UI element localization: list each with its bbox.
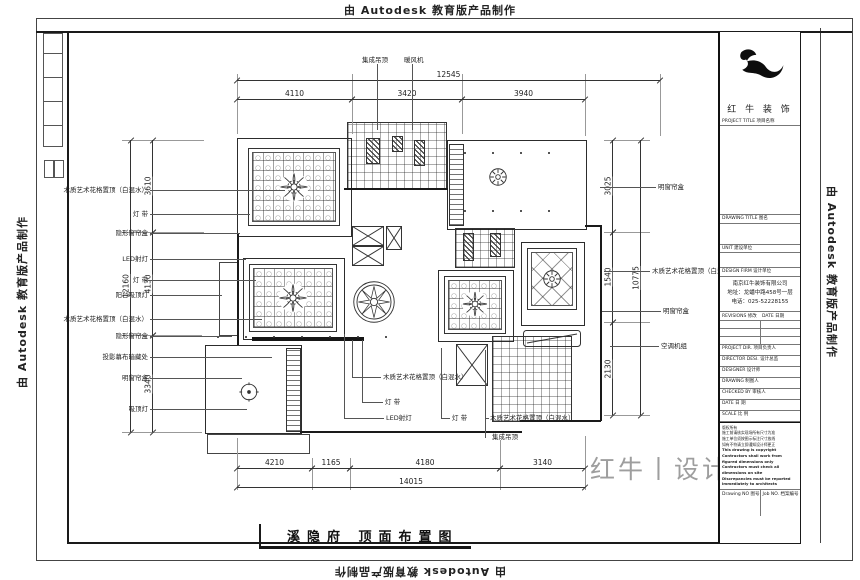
tb-person-row: DIRECTOR DESI. 设计总监 [720,356,800,367]
revisions-header: REVISIONS 修改 DATE 日期 [720,312,800,321]
firm-info: 南京红牛装饰有限公司 地址：龙蟠中路458号一层 电话：025-52228155 [720,277,800,312]
tb-person-row: DRAWING 制图人 [720,378,800,389]
label-led-spotlight: LED射灯 [386,415,412,422]
dim-left-seg: 3610 [152,140,153,232]
margin-box [43,77,63,103]
label-heater-fan: 暖风机 [404,57,424,64]
ceiling-lamp-icon [238,381,260,403]
label-balcony-ceiling-lamp: 阳台吸顶灯 [116,292,149,299]
dim-top-total: 12545 [237,80,660,81]
margin-box-small [44,160,54,178]
label-hidden-curtain-box: 隐形窗帘盒 [116,333,149,340]
label-hidden-curtain-box: 隐形窗帘盒 [116,230,149,237]
hatch-block [490,233,501,257]
tb-footer: Drawing NO 图号 Job NO. 档案编号 [720,489,800,516]
label-exposed-curtain-box: 明窗帘盒 [663,308,689,315]
firm-phone: 电话：025-52228155 [721,298,799,307]
tb-person-row: PROJECT DIR. 项目负责人 [720,345,800,356]
label-exposed-curtain-box: 明窗帘盒 [122,375,148,382]
tb-person-row: CHECKED BY 审核人 [720,389,800,400]
label-wood-lattice-ceiling: 木质艺术花格置顶（白混水） [64,316,149,323]
label-exposed-curtain-box: 明窗帘盒 [658,184,684,191]
dim-top-seg: 3940 [462,99,585,100]
hatch-block [463,233,474,261]
dim-bottom-seg: 3140 [500,468,585,469]
brand-watermark: 红牛丨设计 [590,450,730,486]
label-light-strip: 灯 带 [452,415,467,422]
tb-notes: 版权所有 施工前请核实现场所有尺寸为准 施工单位须按图示标注尺寸放线 如有不符请… [720,422,800,490]
ceiling-fan-icon [541,268,563,290]
fold-line [820,28,821,543]
autodesk-banner-bottom: 由 Autodesk 教育版产品制作 [320,564,520,580]
page-title: 溪隐府 顶面布置图 [287,526,459,545]
margin-box [43,101,63,127]
dim-bottom-seg: 1165 [312,468,350,469]
note-line: Contractors shall work from figured dime… [722,453,798,464]
dim-top-seg: 4110 [237,99,352,100]
dim-bottom-seg: 4180 [350,468,500,469]
wall [585,225,601,227]
ceiling-grid-bath-lower [492,336,572,422]
dim-bottom-seg: 4210 [237,468,312,469]
job-no-label: Job NO. 档案编号 [761,490,801,516]
tb-person-row: SCALE 比 例 [720,411,800,422]
hatch-block [414,140,425,166]
margin-box-small [54,160,64,178]
note-line: Discrepancies must be reported immediate… [722,476,798,487]
label-light-strip: 灯 带 [385,399,400,406]
wall [600,225,602,421]
margin-box [43,125,63,147]
company-name: 红 牛 装 饰 [720,102,800,118]
wall [300,431,522,433]
ceiling-medallion [275,280,311,316]
tb-project-title-space [720,126,800,215]
sheet-border-bottom [36,560,852,561]
note-line: Contractors must check all dimensions on… [722,464,798,475]
downlight-row [462,150,574,156]
label-integrated-ceiling: 集成吊顶 [492,434,518,441]
label-wood-lattice-ceiling: 木质艺术花格置顶（白混水） [64,187,149,194]
autodesk-banner-top: 由 Autodesk 教育版产品制作 [330,2,530,18]
sheet-border-left [36,18,37,561]
revision-row [720,321,800,329]
dim-right-seg: 2130 [612,322,613,415]
ceiling-medallion [276,169,312,205]
tb-person-row: DESIGNER 设计师 [720,367,800,378]
tb-drawing-title: DRAWING TITLE 图名 [720,215,800,223]
revisions-label: REVISIONS 修改 [720,312,760,320]
hatch-block [392,136,403,152]
label-wood-lattice-ceiling: 木质艺术花格置顶（白混水） [383,374,468,381]
downlight-row [215,334,390,340]
frame-left [67,31,69,544]
sheet-border-right [852,18,853,561]
title-block: 红 牛 装 饰 PROJECT TITLE 项目名称 DRAWING TITLE… [718,32,800,543]
ceiling-medallion [459,288,491,320]
balcony-left [219,262,238,336]
ceiling-grid-kitchen [347,122,447,190]
dim-right-seg: 1540 [612,232,613,322]
wall [344,188,448,190]
margin-box [43,53,63,79]
revisions-date-label: DATE 日期 [760,312,800,320]
hatch-block [366,138,380,164]
sheet-border-top [36,18,852,19]
tb-person-row: DATE 日 期 [720,400,800,411]
dim-top-seg: 3420 [352,99,462,100]
tb-unit-space [720,253,800,268]
bull-logo-icon [732,46,788,88]
cad-sheet: 由 Autodesk 教育版产品制作 由 Autodesk 教育版产品制作 由 … [0,0,860,580]
tb-project-title: PROJECT TITLE 项目名称 [720,118,800,126]
balcony-bottom [207,434,310,454]
dim-left-total: 12160 [130,140,131,432]
ceiling-fan-icon [487,166,509,188]
label-ac-unit: 空调机组 [661,343,687,350]
title-underline [259,546,471,549]
dim-left-seg: 3340 [152,335,153,432]
company-logo [720,32,800,102]
wardrobe [286,348,301,432]
beam-cross [352,226,384,266]
revision-row [720,329,800,337]
autodesk-banner-left: 由 Autodesk 教育版产品制作 [14,172,30,432]
round-ceiling-medallion [351,279,397,325]
beam-cross [386,226,402,250]
label-led-spotlight: LED射灯 [122,256,148,263]
tb-drawing-title-space [720,224,800,245]
label-ceiling-lamp: 吸顶灯 [129,406,149,413]
label-light-strip: 灯 带 [133,211,148,218]
label-projector-screen: 投影幕布暗藏处 [103,354,149,361]
tb-unit: UNIT 建设单位 [720,245,800,253]
dim-bottom-total: 14015 [237,487,585,488]
title-corner-mark [259,524,261,548]
tb-design-firm: DESIGN FIRM 设计单位 [720,268,800,276]
firm-name: 南京红牛装饰有限公司 [721,280,799,289]
drawing-no-label: Drawing NO 图号 [720,490,761,516]
revision-row [720,337,800,345]
wall [237,234,239,345]
dim-right-seg: 3025 [612,140,613,232]
label-light-strip: 灯 带 [133,277,148,284]
margin-box [43,33,63,55]
firm-address: 地址：龙蟠中路458号一层 [721,289,799,298]
label-integrated-ceiling: 集成吊顶 [362,57,388,64]
dim-right-total: 10775 [640,140,641,415]
downlight-row [462,208,574,214]
label-wood-lattice-ceiling: 木质艺术花格置顶（白混水） [490,415,575,422]
autodesk-banner-right: 由 Autodesk 教育版产品制作 [824,142,840,402]
